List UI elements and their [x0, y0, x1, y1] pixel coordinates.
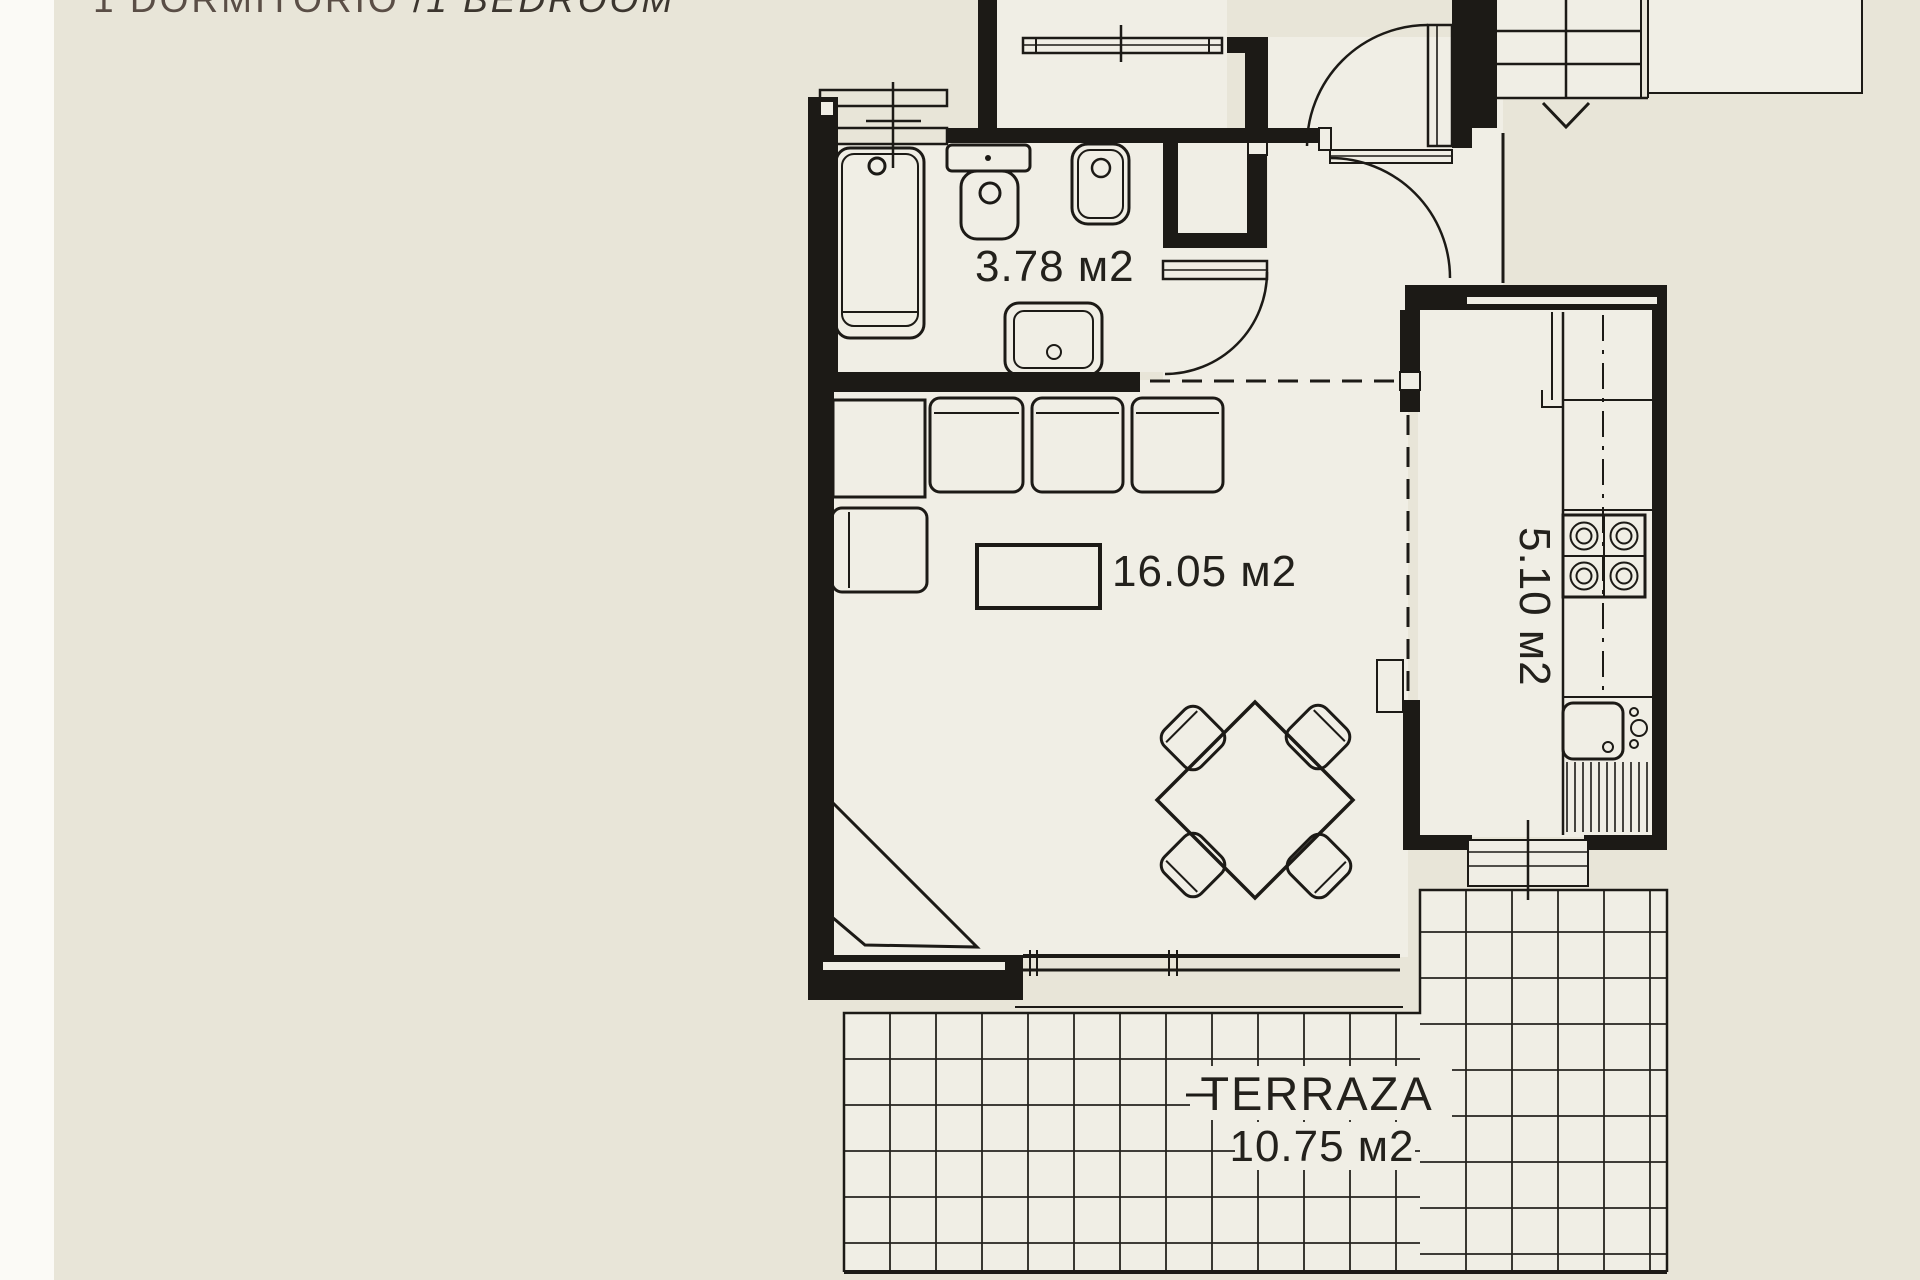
wall-kitchen-top-slit: [1467, 297, 1657, 304]
floor-plan-canvas: 1 DORMITORIO /1 BEDROOM 3.78 м2 16.05 м2…: [0, 0, 1920, 1280]
stair-landing: [1648, 0, 1862, 93]
living-area-label: 16.05 м2: [1112, 547, 1297, 596]
wall-shaft-bottom: [1163, 233, 1267, 248]
floor-plan-page: 1 DORMITORIO /1 BEDROOM 3.78 м2 16.05 м2…: [0, 0, 1920, 1280]
wall-kitchen-left-stub2: [1400, 390, 1420, 412]
toilet-tank-button: [985, 155, 991, 161]
bedroom-floor: [997, 0, 1227, 128]
wall-living-bottom-slit: [823, 962, 1005, 970]
wall-left-lower: [808, 392, 834, 955]
terrace-floor-right: [1420, 890, 1667, 1272]
terrace-name-label: TERRAZA: [1200, 1067, 1433, 1120]
wall-kitchen-left-lower: [1403, 700, 1420, 835]
page-left-margin: [0, 0, 54, 1280]
bathroom-area-label: 3.78 м2: [975, 242, 1135, 291]
shaft-floor: [1178, 143, 1247, 233]
wall-kitchen-right: [1652, 310, 1667, 850]
wall-stairs-pier: [1452, 0, 1497, 128]
kitchen-left-jamb2: [1377, 660, 1403, 712]
wall-kitchen-left-stub1: [1400, 310, 1420, 372]
plan-title-sep: /: [400, 0, 427, 20]
shaft-jamb-cap: [1248, 142, 1267, 155]
wall-living-bottom: [808, 955, 1023, 1000]
kitchen-area-label: 5.10 м2: [1510, 527, 1559, 687]
kitchen-left-jamb1: [1400, 372, 1420, 390]
plan-title: 1 DORMITORIO /1 BEDROOM: [93, 0, 675, 20]
living-room-floor: [832, 380, 1408, 957]
hall-passage-floor: [1163, 248, 1408, 383]
plan-title-es: 1 DORMITORIO: [93, 0, 400, 20]
window-end-cap: [820, 101, 834, 116]
wall-stairs-pier-step: [1452, 128, 1472, 148]
stairs-floor: [1497, 0, 1641, 98]
entry-jamb-cap: [1319, 128, 1331, 150]
wall-hall-top-v: [1245, 37, 1268, 133]
wall-bedroom-pier: [978, 0, 997, 140]
terrace-area-label: 10.75 м2: [1229, 1122, 1414, 1171]
wall-shaft-left: [1163, 142, 1178, 248]
wall-kitchen-bottom-left: [1403, 835, 1472, 850]
plan-title-en: 1 BEDROOM: [426, 0, 675, 20]
